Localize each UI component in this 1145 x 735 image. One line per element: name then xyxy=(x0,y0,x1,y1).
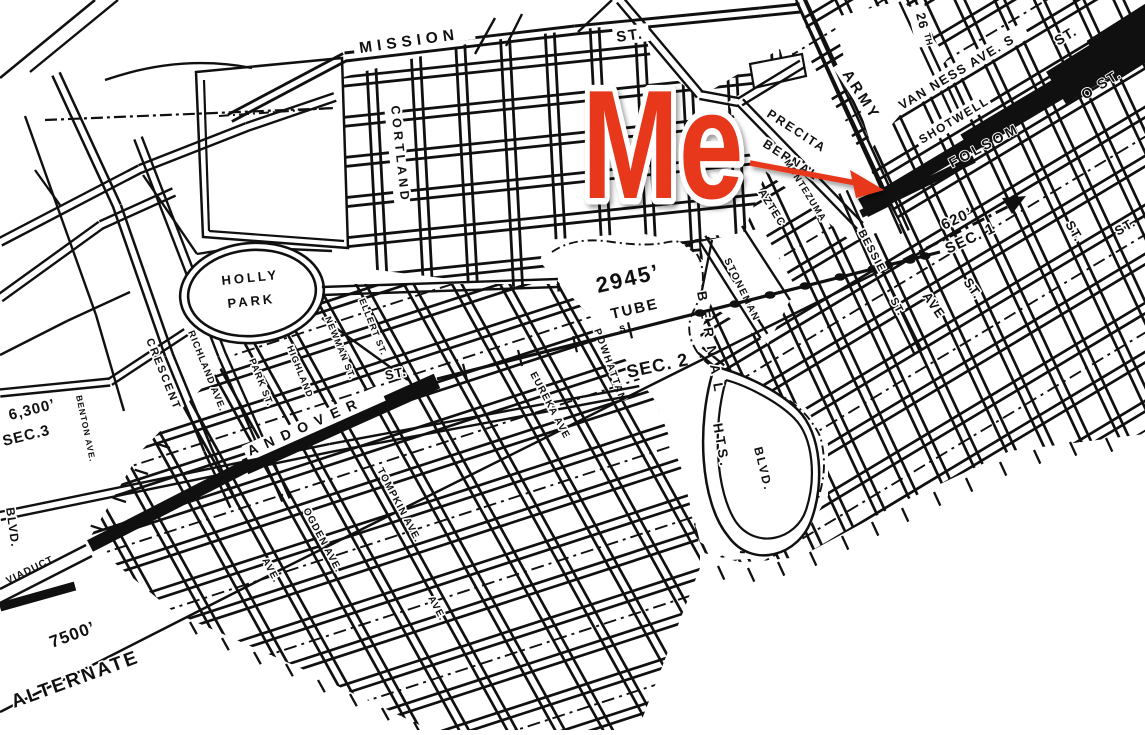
svg-text:Me: Me xyxy=(582,59,743,232)
